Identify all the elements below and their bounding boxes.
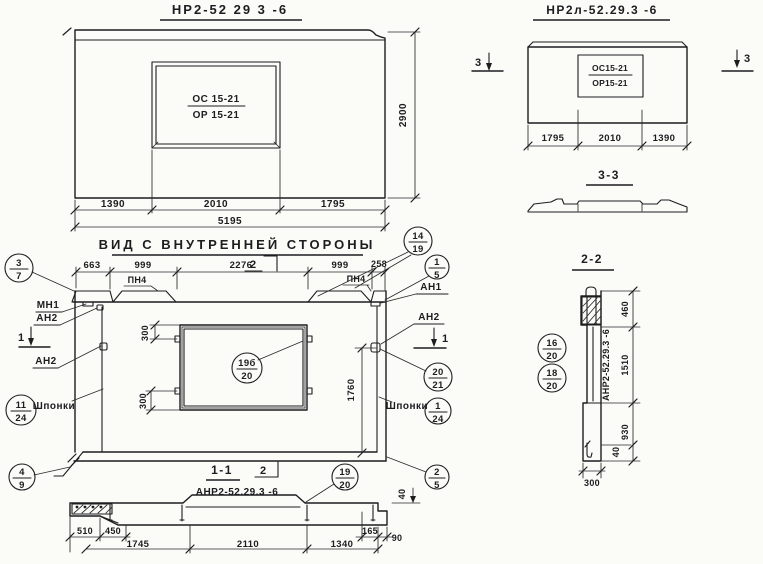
dim-300-sec22: 300 bbox=[584, 478, 600, 488]
facade-view: НР2-52 29 3 -6 ОС 15-21 ОР 15-21 1390 20… bbox=[63, 2, 420, 231]
section-1-1-label: АНР2-52.29.3 -6 bbox=[196, 487, 279, 498]
an2-embed-right bbox=[371, 343, 380, 352]
pn4-label-left: ПН4 bbox=[128, 275, 147, 285]
dim-2900: 2900 bbox=[398, 103, 409, 127]
panel-side-edges bbox=[75, 291, 386, 461]
svg-text:24: 24 bbox=[432, 414, 444, 425]
window-opening-l bbox=[578, 55, 643, 97]
section-3-3-title: 3-3 bbox=[598, 168, 620, 182]
an1-label: АН1 bbox=[420, 282, 442, 293]
top-edge-plates bbox=[72, 291, 386, 302]
keys-label-right: Шпонки bbox=[386, 401, 428, 412]
facade-title: НР2-52 29 3 -6 bbox=[172, 2, 288, 17]
window-mark-bottom: ОР 15-21 bbox=[193, 110, 240, 121]
callout-14-19: 14 19 bbox=[404, 227, 432, 255]
svg-text:11: 11 bbox=[16, 400, 27, 411]
an2-label-right: АН2 bbox=[418, 312, 440, 323]
bottom-anchor-hook bbox=[585, 441, 592, 457]
dim-1795: 1795 bbox=[321, 199, 345, 210]
dim-999-right: 999 bbox=[331, 260, 348, 271]
facade-l-title: НР2л-52.29.3 -6 bbox=[546, 3, 658, 17]
dim-663: 663 bbox=[83, 260, 100, 271]
callout-19b-20: 19б 20 bbox=[232, 353, 262, 383]
window-l-mark-top: ОС15-21 bbox=[592, 63, 628, 73]
svg-text:1: 1 bbox=[18, 332, 24, 344]
svg-text:16: 16 bbox=[546, 338, 557, 349]
svg-text:9: 9 bbox=[19, 480, 25, 491]
section-3-mark-left: 3 bbox=[472, 53, 503, 71]
dim-999-left: 999 bbox=[134, 260, 151, 271]
callout-20-21: 20 21 bbox=[424, 363, 452, 391]
dim-l-1795: 1795 bbox=[542, 133, 565, 144]
section-2-2: 2-2 АНР2-52.29.3 -6 460 1510 930 40 300 bbox=[572, 252, 640, 488]
svg-text:21: 21 bbox=[432, 380, 444, 391]
an2-embed-left bbox=[100, 343, 107, 350]
an2-label-left-2: АН2 bbox=[35, 356, 57, 367]
dim-165: 165 bbox=[362, 526, 378, 536]
callout-11-24: 11 24 bbox=[6, 395, 36, 425]
dim-510: 510 bbox=[77, 526, 93, 536]
svg-text:5: 5 bbox=[434, 480, 440, 491]
svg-text:20: 20 bbox=[339, 480, 350, 491]
svg-text:18: 18 bbox=[546, 368, 557, 379]
svg-text:3: 3 bbox=[744, 53, 750, 65]
section-2-2-profile bbox=[581, 291, 601, 461]
section-1-mark-right: 1 bbox=[414, 328, 448, 348]
section-1-mark-left: 1 bbox=[18, 327, 50, 347]
mn1-label: МН1 bbox=[37, 300, 60, 311]
callout-18-20: 18 20 bbox=[538, 364, 566, 392]
callout-4-9: 4 9 bbox=[9, 464, 35, 491]
bottom-edge bbox=[74, 452, 386, 461]
callout-19-20: 19 20 bbox=[332, 464, 358, 491]
callout-2-5: 2 5 bbox=[425, 465, 449, 491]
svg-text:5: 5 bbox=[434, 270, 440, 281]
pn4-label-right: ПН4 bbox=[347, 274, 366, 284]
section-2-2-label: АНР2-52.29.3 -6 bbox=[601, 329, 611, 401]
keys-label-left: Шпонки bbox=[33, 401, 75, 412]
dim-2010: 2010 bbox=[204, 199, 228, 210]
an2-label-left-1: АН2 bbox=[36, 313, 58, 324]
dim-40-sec22: 40 bbox=[611, 447, 621, 458]
callout-1-5: 1 5 bbox=[425, 255, 449, 281]
dim-2110: 2110 bbox=[237, 539, 259, 550]
dim-1340: 1340 bbox=[331, 539, 354, 550]
dim-l-2010: 2010 bbox=[599, 133, 622, 144]
section-2-mark-bottom: 2 bbox=[255, 462, 278, 477]
svg-text:19: 19 bbox=[339, 467, 350, 478]
dim-2276: 2276 bbox=[230, 260, 253, 271]
dim-1390: 1390 bbox=[101, 199, 125, 210]
drawing-sheet: НР2-52 29 3 -6 ОС 15-21 ОР 15-21 1390 20… bbox=[0, 0, 763, 564]
dim-90: 90 bbox=[392, 533, 403, 543]
svg-text:1: 1 bbox=[434, 257, 440, 268]
svg-text:20: 20 bbox=[241, 371, 252, 382]
window-opening bbox=[152, 62, 280, 148]
svg-text:4: 4 bbox=[19, 467, 25, 478]
svg-text:1: 1 bbox=[435, 401, 441, 412]
svg-text:24: 24 bbox=[15, 413, 27, 424]
callout-16-20: 16 20 bbox=[538, 334, 566, 362]
svg-text:3: 3 bbox=[16, 258, 22, 269]
section-1-1-title: 1-1 bbox=[211, 463, 233, 477]
svg-text:20: 20 bbox=[546, 351, 557, 362]
svg-text:19: 19 bbox=[412, 244, 423, 255]
inner-view-title: ВИД С ВНУТРЕННЕЙ СТОРОНЫ bbox=[99, 237, 376, 252]
dim-1510: 1510 bbox=[620, 354, 630, 375]
facade-left-view: НР2л-52.29.3 -6 ОС15-21 ОР15-21 1795 201… bbox=[472, 3, 753, 212]
svg-text:7: 7 bbox=[16, 271, 22, 282]
svg-text:3: 3 bbox=[475, 57, 481, 69]
dim-300-top: 300 bbox=[140, 325, 150, 341]
svg-text:2: 2 bbox=[434, 467, 440, 478]
dim-460: 460 bbox=[620, 301, 630, 317]
dim-40-right: 40 bbox=[397, 489, 407, 500]
dim-450: 450 bbox=[105, 526, 121, 536]
callout-1-24: 1 24 bbox=[425, 398, 451, 425]
dim-l-1390: 1390 bbox=[653, 133, 676, 144]
inner-view: ВИД С ВНУТРЕННЕЙ СТОРОНЫ 2 6 bbox=[18, 237, 448, 502]
section-1-1-profile bbox=[70, 495, 387, 525]
dim-258: 258 bbox=[371, 259, 387, 269]
section-3-3-profile bbox=[528, 199, 687, 212]
section-1-1: 1-1 2 АНР2-52.29.3 -6 510 450 1745 2110 … bbox=[66, 462, 420, 553]
window-l-mark-bottom: ОР15-21 bbox=[592, 78, 627, 88]
dim-5195: 5195 bbox=[218, 216, 242, 227]
section-3-mark-right: 3 bbox=[722, 50, 753, 71]
svg-text:1: 1 bbox=[442, 333, 448, 345]
svg-text:20: 20 bbox=[432, 367, 443, 378]
svg-text:20: 20 bbox=[546, 381, 557, 392]
dim-1760: 1760 bbox=[346, 379, 357, 402]
svg-text:14: 14 bbox=[412, 231, 424, 242]
panel-drawing: НР2-52 29 3 -6 ОС 15-21 ОР 15-21 1390 20… bbox=[0, 0, 763, 564]
svg-text:19б: 19б bbox=[238, 358, 256, 369]
section-2-2-title: 2-2 bbox=[581, 252, 603, 266]
svg-text:2: 2 bbox=[260, 465, 266, 477]
window-mark-top: ОС 15-21 bbox=[192, 94, 239, 105]
dim-930: 930 bbox=[620, 424, 630, 440]
dim-1745: 1745 bbox=[127, 539, 150, 550]
callout-3-7: 3 7 bbox=[5, 254, 33, 282]
dim-300-bottom: 300 bbox=[138, 393, 148, 409]
